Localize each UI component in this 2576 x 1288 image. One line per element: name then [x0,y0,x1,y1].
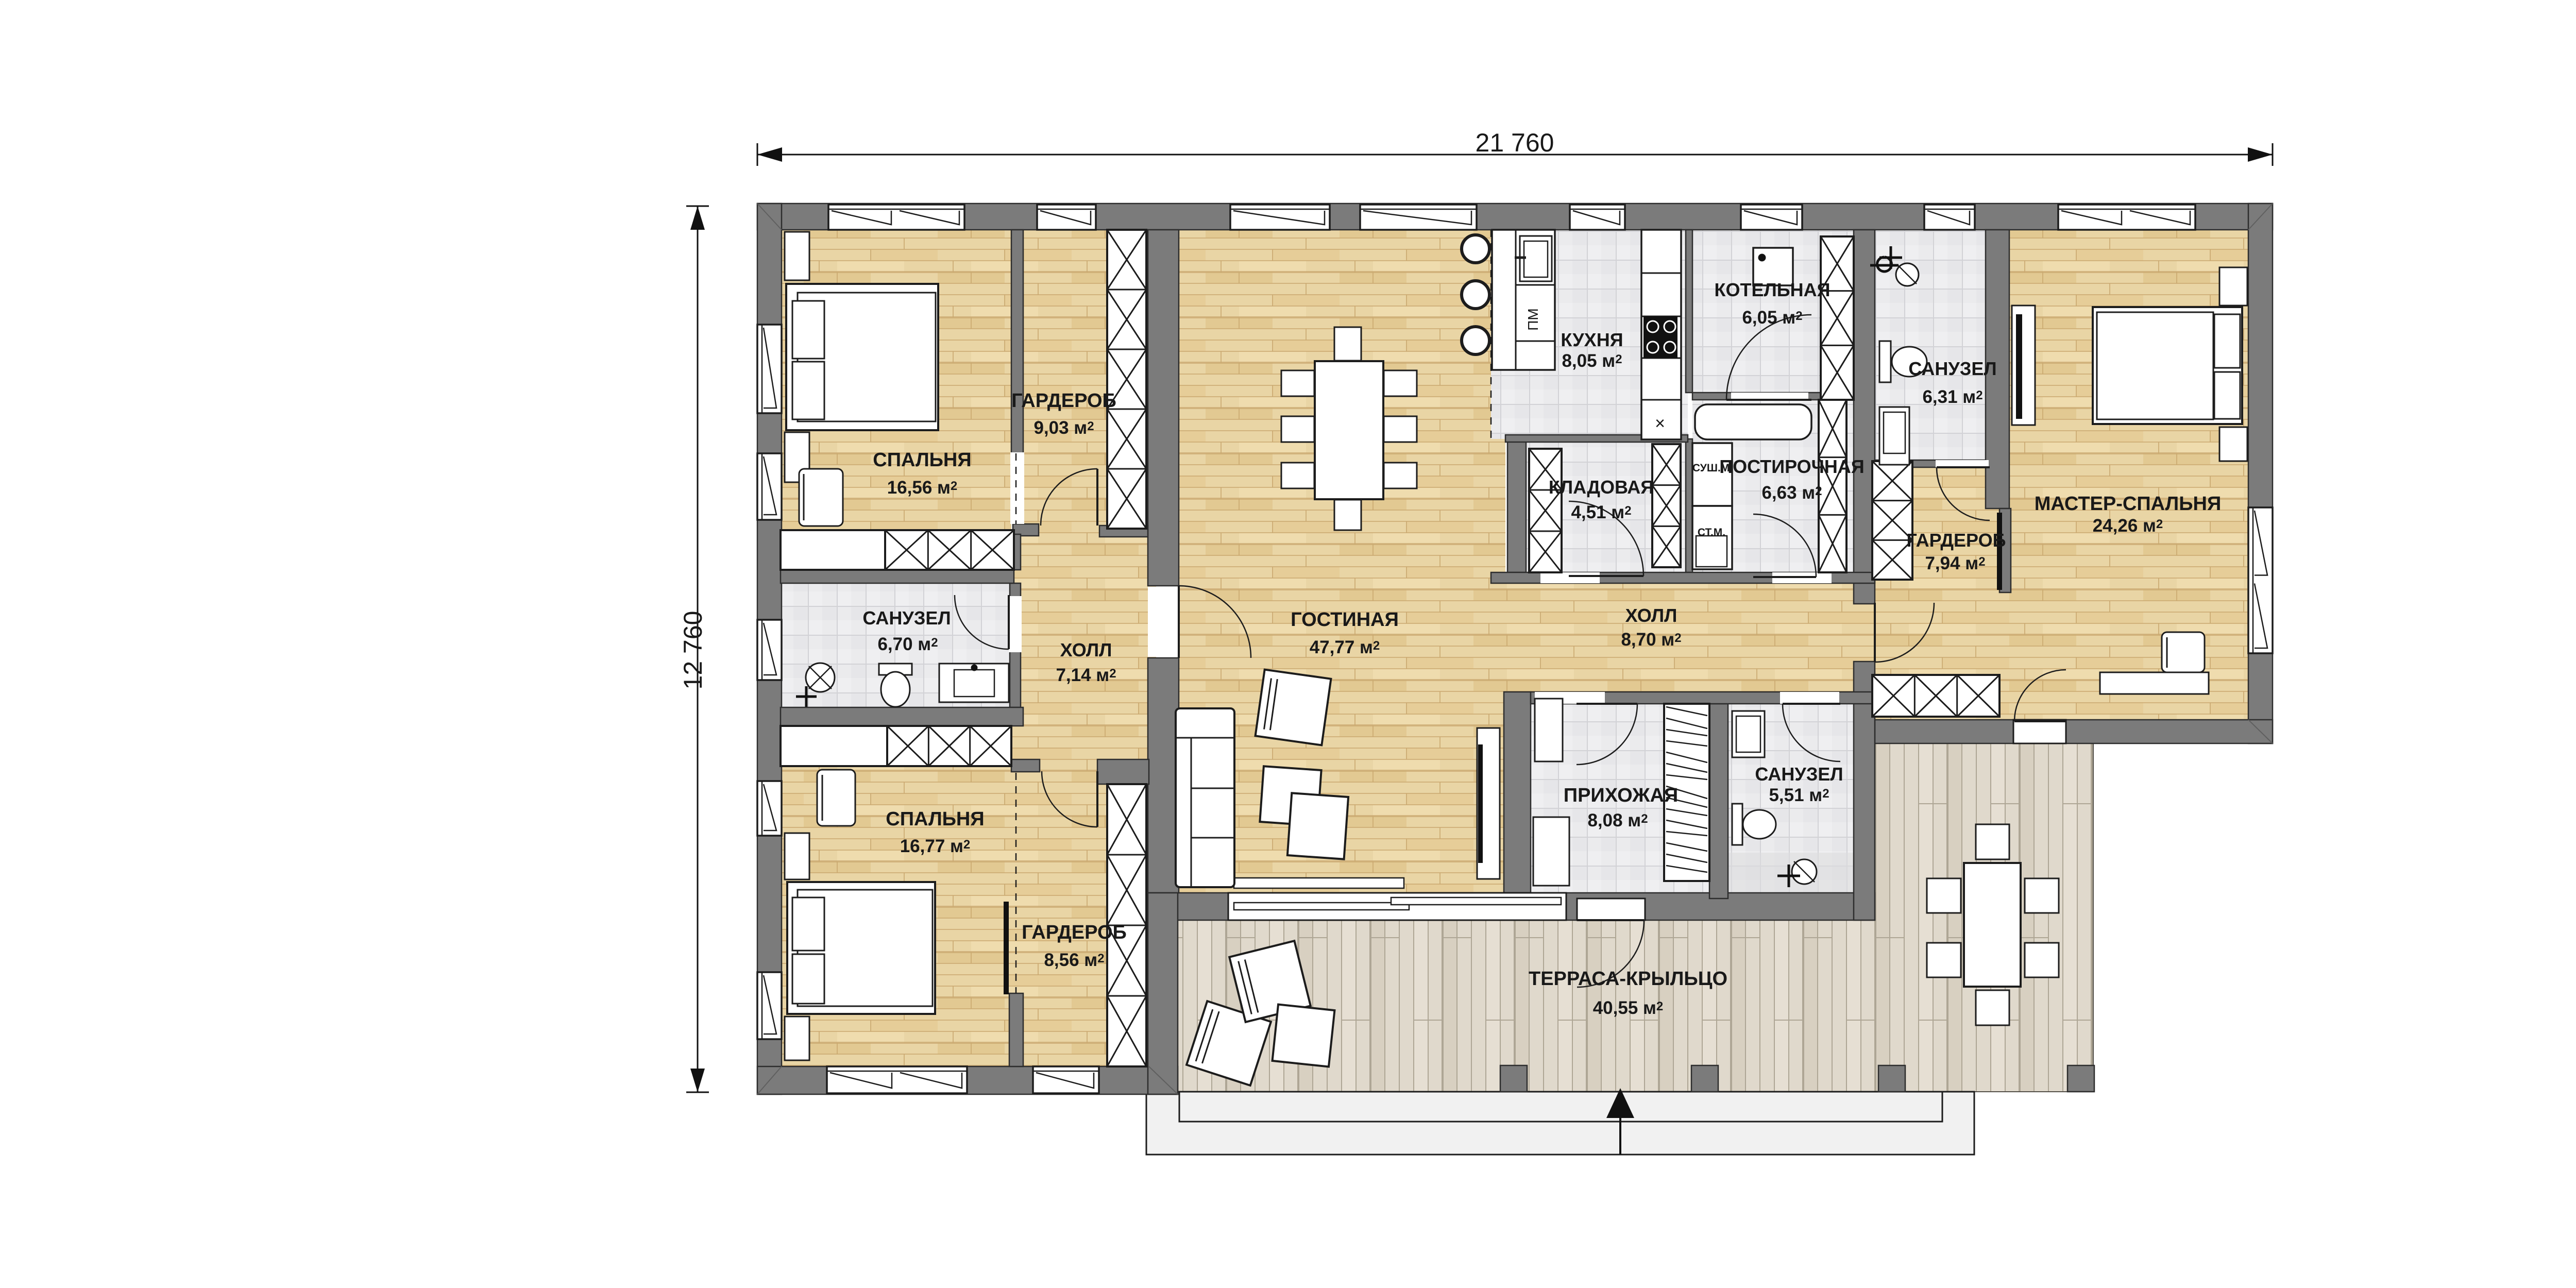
svg-text:ПОСТИРОЧНАЯ: ПОСТИРОЧНАЯ [1719,456,1865,477]
svg-text:7,14 м2: 7,14 м2 [1056,665,1116,685]
svg-text:6,70 м2: 6,70 м2 [877,634,938,654]
svg-text:40,55 м2: 40,55 м2 [1593,998,1664,1018]
svg-text:КЛАДОВАЯ: КЛАДОВАЯ [1549,477,1654,498]
svg-text:САНУЗЕЛ: САНУЗЕЛ [862,607,951,629]
svg-text:ПМ: ПМ [1525,308,1541,330]
svg-text:ГАРДЕРОБ: ГАРДЕРОБ [1907,530,2006,551]
svg-text:КУХНЯ: КУХНЯ [1561,329,1623,350]
svg-text:×: × [1655,414,1665,433]
svg-text:6,31 м2: 6,31 м2 [1922,387,1982,407]
svg-text:16,56 м2: 16,56 м2 [887,478,958,498]
svg-text:СПАЛЬНЯ: СПАЛЬНЯ [873,449,971,471]
svg-text:47,77 м2: 47,77 м2 [1310,637,1380,657]
svg-text:6,05 м2: 6,05 м2 [1742,308,1802,328]
svg-text:21 760: 21 760 [1476,128,1554,157]
svg-text:12 760: 12 760 [679,611,707,690]
svg-text:8,70 м2: 8,70 м2 [1621,630,1681,650]
svg-text:МАСТЕР-СПАЛЬНЯ: МАСТЕР-СПАЛЬНЯ [2035,493,2222,515]
svg-text:САНУЗЕЛ: САНУЗЕЛ [1755,764,1843,785]
svg-text:ГАРДЕРОБ: ГАРДЕРОБ [1022,922,1127,943]
svg-text:4,51 м2: 4,51 м2 [1571,502,1631,522]
svg-text:ХОЛЛ: ХОЛЛ [1060,639,1112,660]
svg-text:ГОСТИНАЯ: ГОСТИНАЯ [1291,609,1399,631]
svg-text:24,26 м2: 24,26 м2 [2093,516,2163,536]
svg-text:8,56 м2: 8,56 м2 [1044,950,1104,970]
svg-text:ГАРДЕРОБ: ГАРДЕРОБ [1011,390,1116,412]
svg-text:8,08 м2: 8,08 м2 [1587,810,1648,831]
svg-text:6,63 м2: 6,63 м2 [1761,483,1822,503]
svg-text:СПАЛЬНЯ: СПАЛЬНЯ [886,808,984,830]
svg-text:5,51 м2: 5,51 м2 [1769,785,1829,805]
svg-text:ХОЛЛ: ХОЛЛ [1625,605,1677,626]
svg-text:САНУЗЕЛ: САНУЗЕЛ [1908,358,1996,379]
svg-text:16,77 м2: 16,77 м2 [900,836,971,856]
svg-text:ТЕРРАСА-КРЫЛЬЦО: ТЕРРАСА-КРЫЛЬЦО [1529,968,1727,990]
svg-text:7,94 м2: 7,94 м2 [1925,553,1985,573]
svg-text:9,03 м2: 9,03 м2 [1033,418,1094,438]
svg-text:ПРИХОЖАЯ: ПРИХОЖАЯ [1564,785,1679,806]
svg-text:КОТЕЛЬНАЯ: КОТЕЛЬНАЯ [1715,279,1831,300]
svg-text:8,05 м2: 8,05 м2 [1562,351,1622,371]
